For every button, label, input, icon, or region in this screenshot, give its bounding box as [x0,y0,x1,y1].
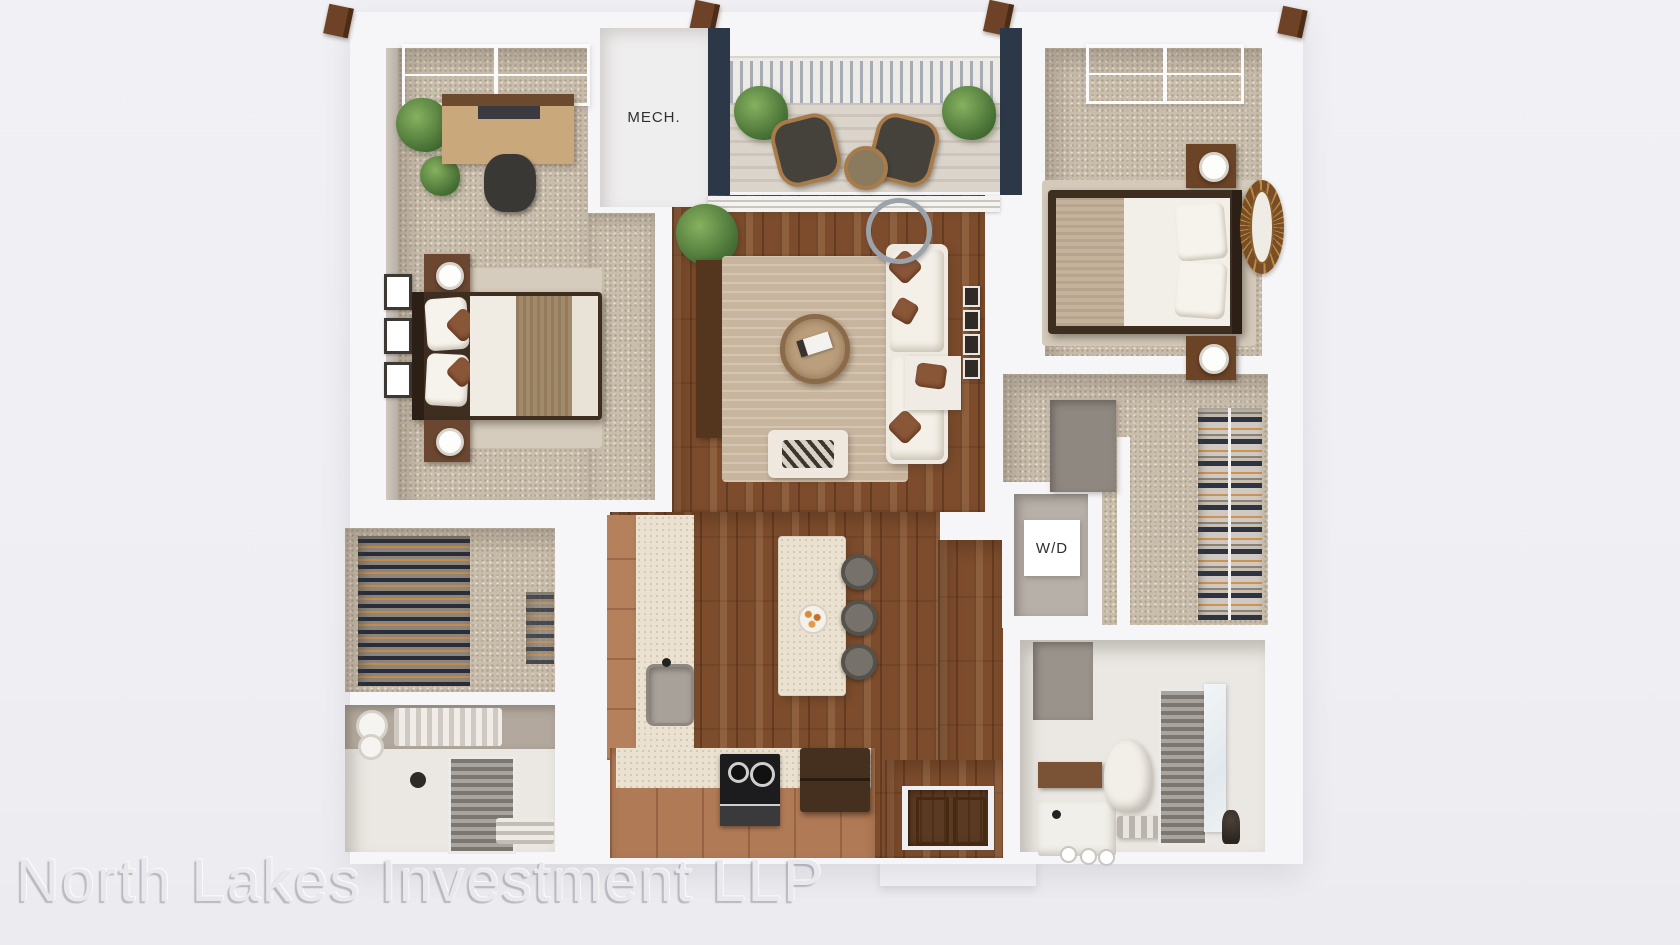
bath-stool [410,772,426,788]
picture-frame [384,318,412,354]
bar-stool [841,554,877,590]
robe-chair [1104,740,1152,812]
toilet-paper [1060,846,1077,863]
pillow [1174,202,1229,262]
toilet-paper [1098,849,1115,866]
front-door [908,790,988,846]
bar-stool [841,600,877,636]
towel-stack [394,708,502,746]
refrigerator-divider [800,778,870,781]
picture-frame [963,310,980,331]
towel-roll [358,734,384,760]
closet-shelf-small [526,592,554,664]
closet-shelf-divider [1228,408,1231,620]
mech-label: MECH. [627,109,680,126]
shower-screen [1158,688,1208,846]
oven-front [720,804,780,826]
bedroom-right-window [1086,44,1244,104]
faucet [662,658,671,667]
shower-mirror-panel [1204,684,1226,832]
entry-hall-floor [938,540,1003,790]
headboard [412,292,424,420]
burner [750,762,775,787]
bed-blanket [1056,198,1124,326]
roof-post [1277,6,1307,39]
floorplan-render: MECH. [0,0,1680,945]
table-lamp [436,428,464,456]
pillow [1174,260,1228,319]
fruit-bowl [798,604,828,634]
faucet [1052,810,1061,819]
mirror-glass [1250,190,1274,264]
table-lamp [1199,152,1229,182]
patio-side-table [844,146,888,190]
wd-label: W/D [1036,540,1068,557]
table-lamp [436,262,464,290]
burner [728,762,749,783]
door-panel [916,797,949,845]
closet-wall [1117,437,1130,625]
balcony-wall-right [1000,28,1022,195]
bathroom-plant [1222,810,1240,844]
dresser-cushion [914,362,947,390]
laundry-wall [1002,616,1100,628]
bed-blanket [516,296,572,416]
laundry-wall [1088,482,1102,628]
washer-dryer-unit: W/D [1024,520,1080,576]
door-panel [953,797,986,845]
bath-mat [496,818,554,844]
picture-frame [384,274,412,310]
bar-stool [841,644,877,680]
laundry-wall [1002,482,1014,628]
office-chair [484,154,536,212]
vanity-shelf [1038,762,1102,788]
picture-frame [963,286,980,307]
picture-frame [384,362,412,398]
picture-frame [963,358,980,379]
sunburst-mirror [1240,180,1284,274]
picture-frame [963,334,980,355]
balcony-plant-right [942,86,996,140]
balcony-slider-door [708,196,1000,212]
clothes-rack [358,536,470,686]
wardrobe-cabinet [1050,400,1116,492]
bed-sheet [470,296,518,416]
monitor [478,106,540,119]
watermark-text: North Lakes Investment LLP [16,846,825,915]
floor-mirror [866,198,932,264]
kitchen-sink [646,664,694,726]
stove [720,754,780,826]
bench-pillow [782,440,834,468]
balcony-wall-left [708,28,730,195]
toilet-paper [1080,848,1097,865]
bathroom-vanity [1038,800,1116,856]
linen-cabinet [1033,642,1093,720]
foot-bolster [572,296,598,416]
mech-room-floor: MECH. [600,28,708,207]
table-lamp [1199,344,1229,374]
